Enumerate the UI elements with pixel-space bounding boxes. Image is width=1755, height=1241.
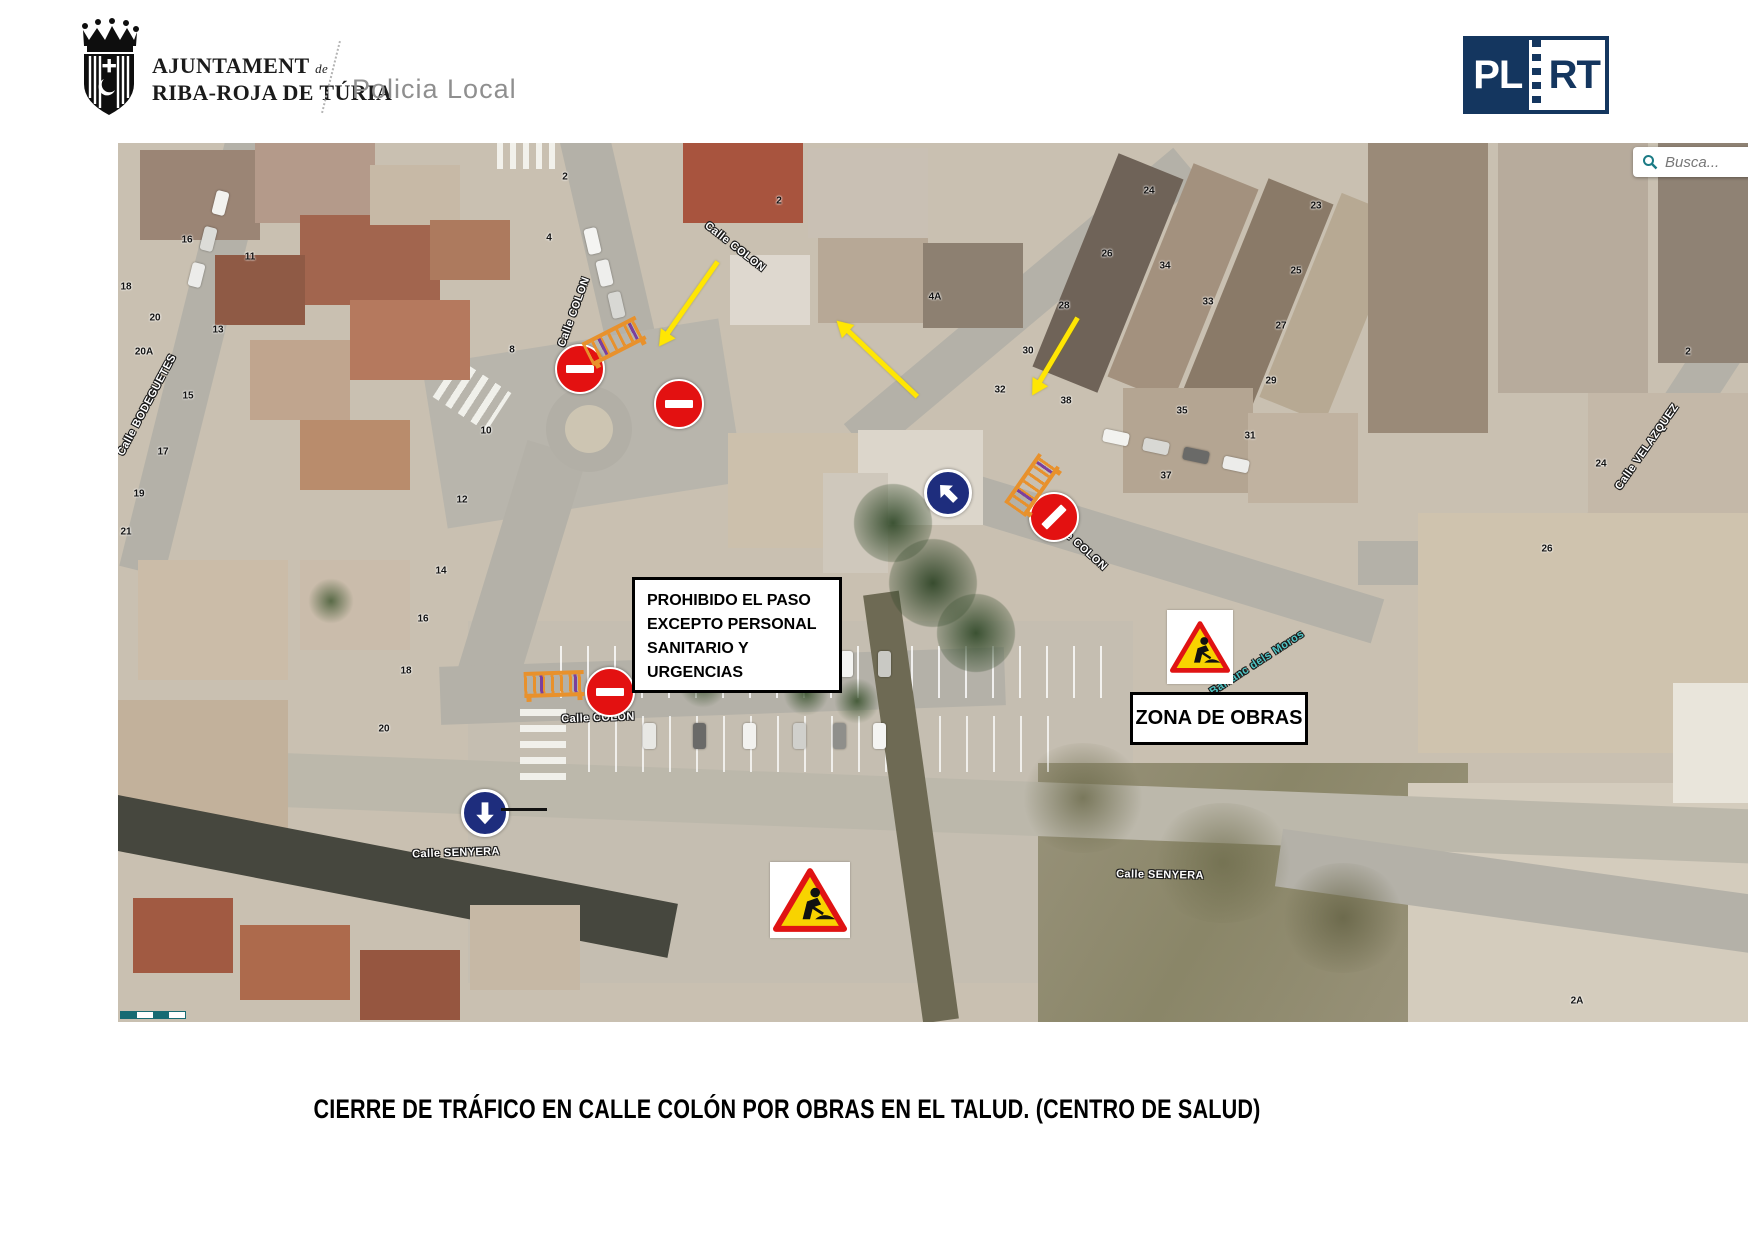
direction-arrow-icon — [470, 798, 500, 828]
construction-barrier — [524, 670, 585, 698]
house-number: 24 — [1595, 459, 1606, 470]
house-number: 12 — [456, 495, 467, 506]
mandatory-direction-sign — [461, 789, 509, 837]
arrow-head — [1024, 377, 1048, 400]
house-number: 4 — [546, 233, 552, 244]
house-number: 19 — [133, 489, 144, 500]
house-number: 2A — [1571, 996, 1584, 1007]
direction-arrow-icon — [927, 472, 969, 514]
house-number: 16 — [181, 235, 192, 246]
house-number: 14 — [435, 566, 446, 577]
house-number: 2 — [562, 172, 568, 183]
traffic-direction-arrow — [838, 322, 917, 397]
street-label: Calle COLON — [556, 275, 592, 348]
house-number: 27 — [1275, 321, 1286, 332]
house-number: 34 — [1159, 261, 1170, 272]
house-number: 13 — [212, 325, 223, 336]
house-number: 4A — [929, 292, 942, 303]
no-entry-bar — [665, 400, 693, 408]
mandatory-direction-sign — [924, 469, 972, 517]
map-caption: CIERRE DE TRÁFICO EN CALLE COLÓN POR OBR… — [314, 1094, 1261, 1125]
house-number: 18 — [120, 282, 131, 293]
house-number: 10 — [480, 426, 491, 437]
org-de: de — [315, 61, 328, 76]
house-number: 16 — [417, 614, 428, 625]
house-number: 30 — [1022, 346, 1033, 357]
house-number: 23 — [1310, 201, 1321, 212]
sign-pointer-line — [501, 808, 547, 811]
house-number: 11 — [245, 252, 256, 263]
house-number: 2 — [776, 196, 782, 207]
house-number: 2 — [1685, 347, 1691, 358]
house-number: 26 — [1101, 249, 1112, 260]
house-number: 20 — [149, 313, 160, 324]
no-entry-sign — [585, 667, 635, 717]
street-label: Calle SENYERA — [412, 845, 500, 860]
no-entry-bar — [566, 365, 594, 373]
traffic-direction-arrow — [1033, 318, 1078, 394]
arrow-shaft — [665, 261, 720, 336]
traffic-direction-arrow — [660, 262, 718, 345]
house-number: 25 — [1290, 266, 1301, 277]
search-icon — [1642, 154, 1658, 170]
house-number: 17 — [157, 447, 168, 458]
logo-dotted-divider — [1532, 40, 1541, 110]
street-label: Calle VELAZQUEZ — [1613, 402, 1681, 492]
house-number: 35 — [1176, 406, 1187, 417]
house-number: 8 — [509, 345, 515, 356]
house-number: 26 — [1541, 544, 1552, 555]
house-number: 38 — [1060, 396, 1071, 407]
map-scale-bar — [120, 1011, 186, 1019]
house-number: 20 — [378, 724, 389, 735]
house-number: 33 — [1202, 297, 1213, 308]
page: AJUNTAMENT de RIBA-ROJA DE TÚRIA Policia… — [0, 0, 1755, 1241]
roadworks-sign — [770, 862, 850, 938]
house-number: 37 — [1160, 471, 1171, 482]
street-label: Calle BODEGUETES — [118, 352, 179, 457]
no-entry-sign — [654, 379, 704, 429]
house-number: 18 — [400, 666, 411, 677]
zona-de-obras-annotation-box: ZONA DE OBRAS — [1130, 692, 1308, 745]
house-number: 28 — [1058, 301, 1069, 312]
org-line1: AJUNTAMENT — [152, 53, 309, 78]
arrow-shaft — [1037, 317, 1080, 384]
logo-rt-text: RT — [1544, 40, 1606, 110]
street-label: Calle SENYERA — [1116, 868, 1204, 882]
search-placeholder-text: Busca... — [1665, 154, 1719, 171]
house-number: 15 — [182, 391, 193, 402]
prohibido-paso-annotation-box: PROHIBIDO EL PASO EXCEPTO PERSONAL SANIT… — [632, 577, 842, 693]
house-number: 24 — [1143, 186, 1154, 197]
house-number: 32 — [994, 385, 1005, 396]
construction-barrier — [581, 316, 646, 366]
house-number: 21 — [120, 527, 131, 538]
roadworks-triangle-icon — [1170, 613, 1230, 681]
house-number: 20A — [135, 347, 153, 358]
map-annotation-layer: Calle COLONCalle COLONCalle COLONCalle C… — [118, 143, 1748, 1022]
policia-local-brand-logo: PL RT — [1463, 36, 1609, 114]
map-search-input[interactable]: Busca... — [1633, 147, 1748, 177]
arrow-shaft — [846, 329, 919, 399]
roadworks-sign — [1167, 610, 1233, 684]
no-entry-bar — [596, 688, 624, 696]
house-number: 31 — [1244, 431, 1255, 442]
department-label: Policia Local — [352, 74, 517, 105]
house-number: 29 — [1265, 376, 1276, 387]
aerial-map: Calle COLONCalle COLONCalle COLONCalle C… — [118, 143, 1748, 1022]
logo-pl-text: PL — [1467, 40, 1529, 110]
no-entry-bar — [1041, 504, 1066, 529]
roadworks-triangle-icon — [773, 865, 847, 935]
coat-of-arms — [76, 18, 142, 118]
